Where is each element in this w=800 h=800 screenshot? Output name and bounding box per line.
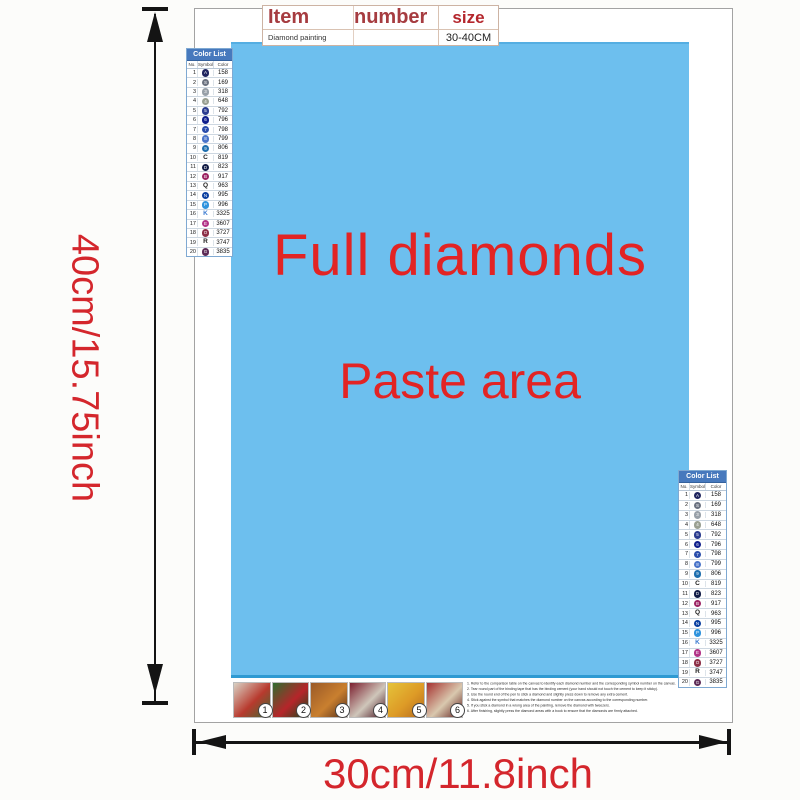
color-list-title: Color List: [187, 49, 232, 61]
color-list-row: 16K3325: [187, 209, 232, 218]
color-symbol-cell: E: [689, 649, 705, 657]
color-symbol-icon: P: [202, 201, 210, 209]
color-list-row: 99806: [187, 143, 232, 152]
color-code: 806: [213, 145, 232, 151]
color-symbol-icon: E: [694, 649, 702, 657]
color-symbol-letter: C: [695, 581, 700, 588]
color-symbol-icon: O: [694, 659, 702, 667]
color-list-row-number: 7: [679, 551, 689, 557]
color-symbol-icon: 9: [694, 570, 702, 578]
color-list-row-number: 5: [679, 532, 689, 538]
color-list-row: 12B917: [187, 171, 232, 180]
color-list-row-number: 10: [187, 155, 197, 161]
color-list-row-number: 2: [187, 80, 197, 86]
color-code: 796: [705, 542, 726, 548]
color-symbol-cell: 3: [689, 511, 705, 519]
step-thumbnail: 5: [387, 682, 425, 718]
height-arrow-line: [154, 14, 156, 702]
color-list-row: 10C819: [187, 153, 232, 162]
width-dimension-label: 30cm/11.8inch: [323, 750, 593, 798]
color-list-row-number: 8: [187, 136, 197, 142]
color-list-col-symbol: Symbol: [689, 483, 705, 490]
paste-area-subtitle: Paste area: [231, 356, 689, 406]
color-code: 318: [213, 89, 232, 95]
color-symbol-icon: A: [202, 69, 210, 77]
color-list-row: 19R3747: [187, 237, 232, 246]
color-symbol-cell: Q: [689, 610, 705, 617]
color-list-row: 17E3607: [187, 219, 232, 228]
color-symbol-cell: N: [689, 620, 705, 628]
color-list-row: 18O3727: [679, 657, 726, 667]
color-list-row-number: 3: [679, 512, 689, 518]
color-code: 3727: [705, 660, 726, 666]
item-table-number-value: [353, 30, 438, 45]
color-list-row: 18O3727: [187, 228, 232, 237]
color-list-row: 44648: [679, 520, 726, 530]
color-list-row: 1A158: [679, 491, 726, 500]
color-list-row: 15P996: [679, 628, 726, 638]
color-symbol-cell: S: [197, 79, 213, 87]
color-list-row: 11D823: [679, 588, 726, 598]
color-symbol-cell: 4: [689, 521, 705, 529]
color-symbol-cell: R: [689, 669, 705, 676]
color-code: 796: [213, 117, 232, 123]
color-list-row-number: 14: [679, 620, 689, 626]
color-symbol-letter: Q: [203, 183, 208, 190]
color-code: 996: [213, 202, 232, 208]
color-list-rows: 1A1582S169333184464855792667967779888799…: [187, 69, 232, 256]
color-code: 823: [213, 164, 232, 170]
color-code: 996: [705, 630, 726, 636]
color-list-row: 2S169: [187, 77, 232, 86]
width-arrow-left-head-icon: [198, 735, 226, 749]
item-table-header-row: Item number size: [263, 6, 498, 29]
color-list-row-number: 8: [679, 561, 689, 567]
color-symbol-letter: K: [203, 211, 208, 218]
color-symbol-letter: Q: [695, 610, 700, 617]
color-list-row-number: 20: [679, 679, 689, 685]
color-list-row-number: 10: [679, 581, 689, 587]
color-list-row: 17E3607: [679, 648, 726, 658]
color-code: 158: [213, 70, 232, 76]
color-code: 917: [705, 601, 726, 607]
color-symbol-icon: N: [202, 192, 210, 200]
color-symbol-cell: G: [689, 679, 705, 687]
height-arrow-down-head-icon: [147, 664, 163, 694]
color-list-row: 15P996: [187, 200, 232, 209]
item-table-header-item: Item: [263, 6, 353, 29]
color-symbol-icon: S: [694, 502, 702, 510]
color-symbol-letter: K: [695, 640, 700, 647]
color-symbol-icon: P: [694, 629, 702, 637]
color-list-right: Color ListNo.SymbolColor1A1582S169333184…: [678, 470, 727, 688]
color-symbol-cell: 9: [197, 145, 213, 153]
color-symbol-icon: 4: [694, 521, 702, 529]
step-number-badge: 6: [450, 703, 465, 718]
color-list-left: Color ListNo.SymbolColor1A1582S169333184…: [186, 48, 233, 257]
color-code: 3607: [213, 221, 232, 227]
color-list-row-number: 16: [187, 211, 197, 217]
step-thumbnail: 2: [272, 682, 310, 718]
color-list-row-number: 20: [187, 249, 197, 255]
color-symbol-icon: 6: [202, 116, 210, 124]
height-arrow-up-head-icon: [147, 12, 163, 42]
color-list-row-number: 11: [187, 164, 197, 170]
color-code: 648: [705, 522, 726, 528]
color-list-row-number: 13: [679, 611, 689, 617]
color-list-row-number: 16: [679, 640, 689, 646]
color-list-col-no: No.: [679, 483, 689, 490]
color-symbol-icon: 4: [202, 98, 210, 106]
color-list-row-number: 9: [679, 571, 689, 577]
color-list-col-no: No.: [187, 61, 197, 68]
color-code: 3607: [705, 650, 726, 656]
height-dimension-label: 40cm/15.75inch: [63, 234, 106, 502]
color-symbol-cell: O: [197, 229, 213, 237]
color-list-row-number: 1: [187, 70, 197, 76]
color-symbol-icon: A: [694, 492, 702, 500]
color-symbol-cell: 7: [197, 126, 213, 134]
color-list-row-number: 7: [187, 127, 197, 133]
color-list-row: 11D823: [187, 162, 232, 171]
color-symbol-icon: D: [694, 590, 702, 598]
color-list-row-number: 6: [679, 542, 689, 548]
color-list-row: 14N995: [187, 190, 232, 199]
color-list-row: 55792: [679, 529, 726, 539]
color-code: 819: [705, 581, 726, 587]
height-arrow-top-cap: [142, 7, 168, 11]
color-list-col-color: Color: [705, 483, 726, 490]
color-symbol-icon: B: [694, 600, 702, 608]
color-list-row: 2S169: [679, 500, 726, 510]
color-list-row: 88799: [679, 559, 726, 569]
color-list-row-number: 12: [187, 174, 197, 180]
width-arrow-right-cap: [727, 729, 731, 755]
color-list-row: 10C819: [679, 579, 726, 589]
color-list-row: 13Q963: [187, 181, 232, 190]
color-symbol-icon: N: [694, 620, 702, 628]
color-list-row-number: 19: [679, 670, 689, 676]
color-list-row: 19R3747: [679, 667, 726, 677]
color-symbol-icon: 6: [694, 541, 702, 549]
color-symbol-letter: R: [203, 239, 208, 246]
color-list-title: Color List: [679, 471, 726, 483]
step-thumbnail: 4: [349, 682, 387, 718]
step-number-badge: 5: [412, 703, 427, 718]
color-list-row-number: 4: [187, 98, 197, 104]
color-code: 3747: [705, 670, 726, 676]
color-symbol-icon: 9: [202, 145, 210, 153]
color-symbol-cell: 4: [197, 98, 213, 106]
color-list-row: 66796: [679, 539, 726, 549]
width-arrow-left-cap: [192, 729, 196, 755]
color-list-row: 16K3325: [679, 638, 726, 648]
color-code: 3835: [705, 679, 726, 685]
color-code: 917: [213, 174, 232, 180]
color-code: 792: [213, 108, 232, 114]
color-list-row-number: 15: [679, 630, 689, 636]
step-number-badge: 2: [296, 703, 311, 718]
color-list-row: 1A158: [187, 69, 232, 77]
item-table-product-name: Diamond painting: [263, 30, 353, 45]
step-thumbnail: 1: [233, 682, 271, 718]
color-list-row-number: 15: [187, 202, 197, 208]
color-code: 318: [705, 512, 726, 518]
color-symbol-cell: 8: [689, 561, 705, 569]
color-list-row: 33318: [679, 510, 726, 520]
color-list-row-number: 12: [679, 601, 689, 607]
color-code: 648: [213, 98, 232, 104]
item-table-header-number: number: [353, 6, 438, 29]
color-symbol-cell: E: [197, 220, 213, 228]
color-symbol-cell: D: [197, 164, 213, 172]
color-symbol-cell: S: [689, 502, 705, 510]
color-symbol-cell: 6: [689, 541, 705, 549]
step-number-badge: 3: [335, 703, 350, 718]
color-symbol-letter: C: [203, 155, 208, 162]
color-list-row-number: 2: [679, 502, 689, 508]
color-list-row: 77798: [187, 124, 232, 133]
color-list-row: 12B917: [679, 598, 726, 608]
color-symbol-cell: R: [197, 239, 213, 246]
color-list-row-number: 1: [679, 492, 689, 498]
color-list-column-headers: No.SymbolColor: [187, 61, 232, 69]
step-number-badge: 1: [258, 703, 273, 718]
color-symbol-cell: B: [197, 173, 213, 181]
color-list-row: 77798: [679, 549, 726, 559]
item-table-header-size: size: [438, 6, 498, 29]
color-symbol-cell: Q: [197, 183, 213, 190]
color-symbol-icon: 5: [694, 531, 702, 539]
color-list-row-number: 17: [187, 221, 197, 227]
color-code: 823: [705, 591, 726, 597]
color-list-row: 14N995: [679, 618, 726, 628]
color-code: 3325: [213, 211, 232, 217]
color-list-row: 88799: [187, 134, 232, 143]
color-list-row-number: 6: [187, 117, 197, 123]
color-code: 158: [705, 492, 726, 498]
color-symbol-cell: C: [689, 581, 705, 588]
color-list-col-symbol: Symbol: [197, 61, 213, 68]
color-symbol-icon: 7: [694, 551, 702, 559]
color-code: 798: [705, 551, 726, 557]
color-symbol-icon: 5: [202, 107, 210, 115]
color-symbol-icon: S: [202, 79, 210, 87]
color-symbol-cell: O: [689, 659, 705, 667]
color-code: 799: [705, 561, 726, 567]
color-symbol-cell: A: [197, 69, 213, 77]
color-code: 995: [213, 192, 232, 198]
color-symbol-cell: 5: [689, 531, 705, 539]
color-code: 806: [705, 571, 726, 577]
color-list-row: 66796: [187, 115, 232, 124]
color-code: 819: [213, 155, 232, 161]
color-code: 3835: [213, 249, 232, 255]
color-list-row-number: 11: [679, 591, 689, 597]
color-list-row-number: 9: [187, 145, 197, 151]
color-list-row-number: 13: [187, 183, 197, 189]
step-thumbnails: 123456: [233, 682, 464, 718]
step-thumbnail: 6: [426, 682, 464, 718]
color-symbol-cell: B: [689, 600, 705, 608]
color-list-row-number: 3: [187, 89, 197, 95]
color-code: 169: [213, 80, 232, 86]
color-list-row-number: 14: [187, 192, 197, 198]
color-code: 798: [213, 127, 232, 133]
color-code: 995: [705, 620, 726, 626]
color-symbol-cell: 6: [197, 116, 213, 124]
color-code: 792: [705, 532, 726, 538]
color-symbol-icon: 8: [202, 135, 210, 143]
color-symbol-cell: D: [689, 590, 705, 598]
color-symbol-icon: 3: [202, 88, 210, 96]
color-symbol-letter: R: [695, 669, 700, 676]
color-symbol-cell: N: [197, 192, 213, 200]
color-symbol-cell: C: [197, 155, 213, 162]
color-list-row-number: 4: [679, 522, 689, 528]
color-symbol-cell: G: [197, 248, 213, 256]
color-list-row: 20G3835: [187, 247, 232, 256]
color-symbol-icon: B: [202, 173, 210, 181]
color-list-row: 13Q963: [679, 608, 726, 618]
step-number-badge: 4: [373, 703, 388, 718]
paste-area: Full diamonds Paste area: [231, 42, 689, 678]
color-code: 799: [213, 136, 232, 142]
color-list-row-number: 17: [679, 650, 689, 656]
color-list-row-number: 18: [187, 230, 197, 236]
color-symbol-cell: K: [689, 640, 705, 647]
color-symbol-icon: G: [694, 679, 702, 687]
color-symbol-icon: 7: [202, 126, 210, 134]
color-list-row-number: 19: [187, 240, 197, 246]
color-symbol-cell: 3: [197, 88, 213, 96]
color-code: 963: [213, 183, 232, 189]
color-list-row: 33318: [187, 87, 232, 96]
color-list-row: 44648: [187, 96, 232, 105]
color-code: 963: [705, 611, 726, 617]
color-symbol-icon: D: [202, 164, 210, 172]
color-symbol-cell: 8: [197, 135, 213, 143]
color-symbol-icon: O: [202, 229, 210, 237]
width-arrow-right-head-icon: [699, 735, 727, 749]
color-list-col-color: Color: [213, 61, 232, 68]
color-symbol-cell: 5: [197, 107, 213, 115]
color-symbol-cell: K: [197, 211, 213, 218]
color-symbol-cell: 7: [689, 551, 705, 559]
color-list-row: 55792: [187, 106, 232, 115]
color-code: 3325: [705, 640, 726, 646]
color-list-column-headers: No.SymbolColor: [679, 483, 726, 491]
color-symbol-cell: A: [689, 492, 705, 500]
color-list-row-number: 5: [187, 108, 197, 114]
color-code: 3747: [213, 240, 232, 246]
color-code: 169: [705, 502, 726, 508]
paste-area-title: Full diamonds: [231, 227, 689, 285]
item-table-size-value: 30-40CM: [438, 30, 498, 45]
color-symbol-icon: G: [202, 248, 210, 256]
color-symbol-icon: 3: [694, 511, 702, 519]
color-symbol-icon: 8: [694, 561, 702, 569]
color-symbol-cell: P: [689, 629, 705, 637]
height-arrow-bottom-cap: [142, 701, 168, 705]
color-symbol-icon: E: [202, 220, 210, 228]
item-table: Item number size Diamond painting 30-40C…: [262, 5, 499, 46]
color-symbol-cell: 9: [689, 570, 705, 578]
step-thumbnail: 3: [310, 682, 348, 718]
width-arrow-line: [196, 741, 728, 744]
item-table-value-row: Diamond painting 30-40CM: [263, 29, 498, 45]
color-list-rows: 1A1582S169333184464855792667967779888799…: [679, 491, 726, 687]
color-list-row: 20G3835: [679, 677, 726, 687]
color-list-row-number: 18: [679, 660, 689, 666]
color-symbol-cell: P: [197, 201, 213, 209]
color-list-row: 99806: [679, 569, 726, 579]
instruction-line: 6. After finishing, slightly press the d…: [467, 709, 731, 715]
color-code: 3727: [213, 230, 232, 236]
